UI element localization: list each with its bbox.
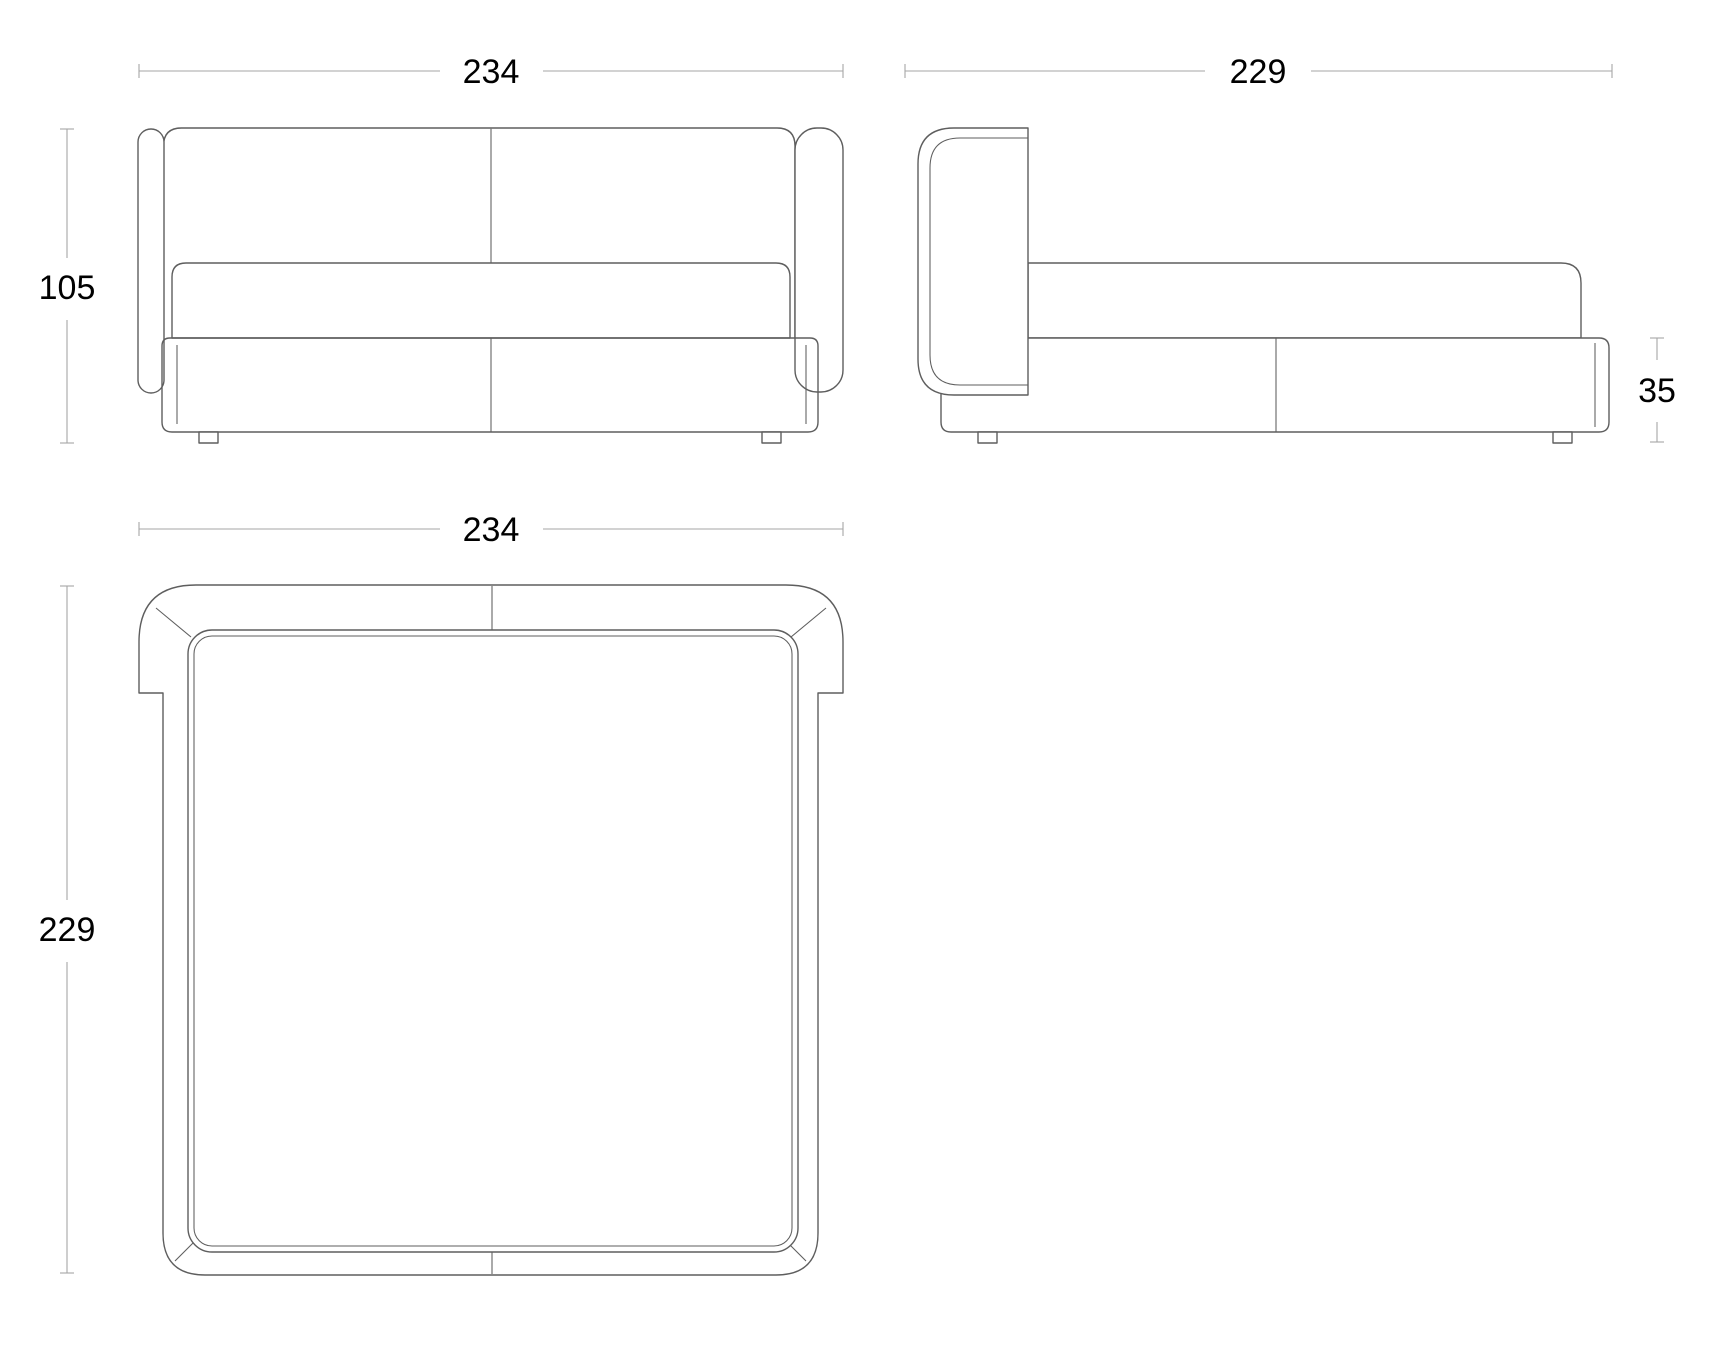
front-mattress: [172, 263, 790, 338]
front-height-label: 105: [39, 269, 96, 307]
side-headboard: [918, 128, 1028, 395]
plan-view: 234 229: [39, 511, 843, 1275]
side-base-height-dimension: 35: [1638, 338, 1676, 442]
front-left-wing: [138, 129, 164, 393]
bed-dimension-drawing: 234 105: [0, 0, 1734, 1348]
front-width-dimension: 234: [139, 53, 843, 91]
side-back-leg: [978, 432, 997, 443]
front-right-leg: [762, 432, 781, 443]
front-width-label: 234: [463, 53, 520, 91]
front-elevation-view: 234 105: [39, 53, 843, 443]
plan-mattress-outer: [188, 630, 798, 1252]
technical-drawing-page: 234 105: [0, 0, 1734, 1348]
front-height-dimension: 105: [39, 129, 96, 443]
side-depth-label: 229: [1230, 53, 1287, 91]
plan-width-dimension: 234: [139, 511, 843, 549]
side-depth-dimension: 229: [905, 53, 1612, 91]
side-elevation-view: 229 35: [905, 53, 1676, 443]
side-mattress: [1028, 263, 1581, 338]
side-front-leg: [1553, 432, 1572, 443]
plan-width-label: 234: [463, 511, 520, 549]
side-base: [941, 338, 1609, 432]
front-right-wing: [795, 128, 843, 392]
front-left-leg: [199, 432, 218, 443]
front-base: [162, 338, 818, 432]
plan-depth-label: 229: [39, 911, 96, 949]
plan-depth-dimension: 229: [39, 586, 96, 1273]
side-base-height-label: 35: [1638, 372, 1676, 410]
